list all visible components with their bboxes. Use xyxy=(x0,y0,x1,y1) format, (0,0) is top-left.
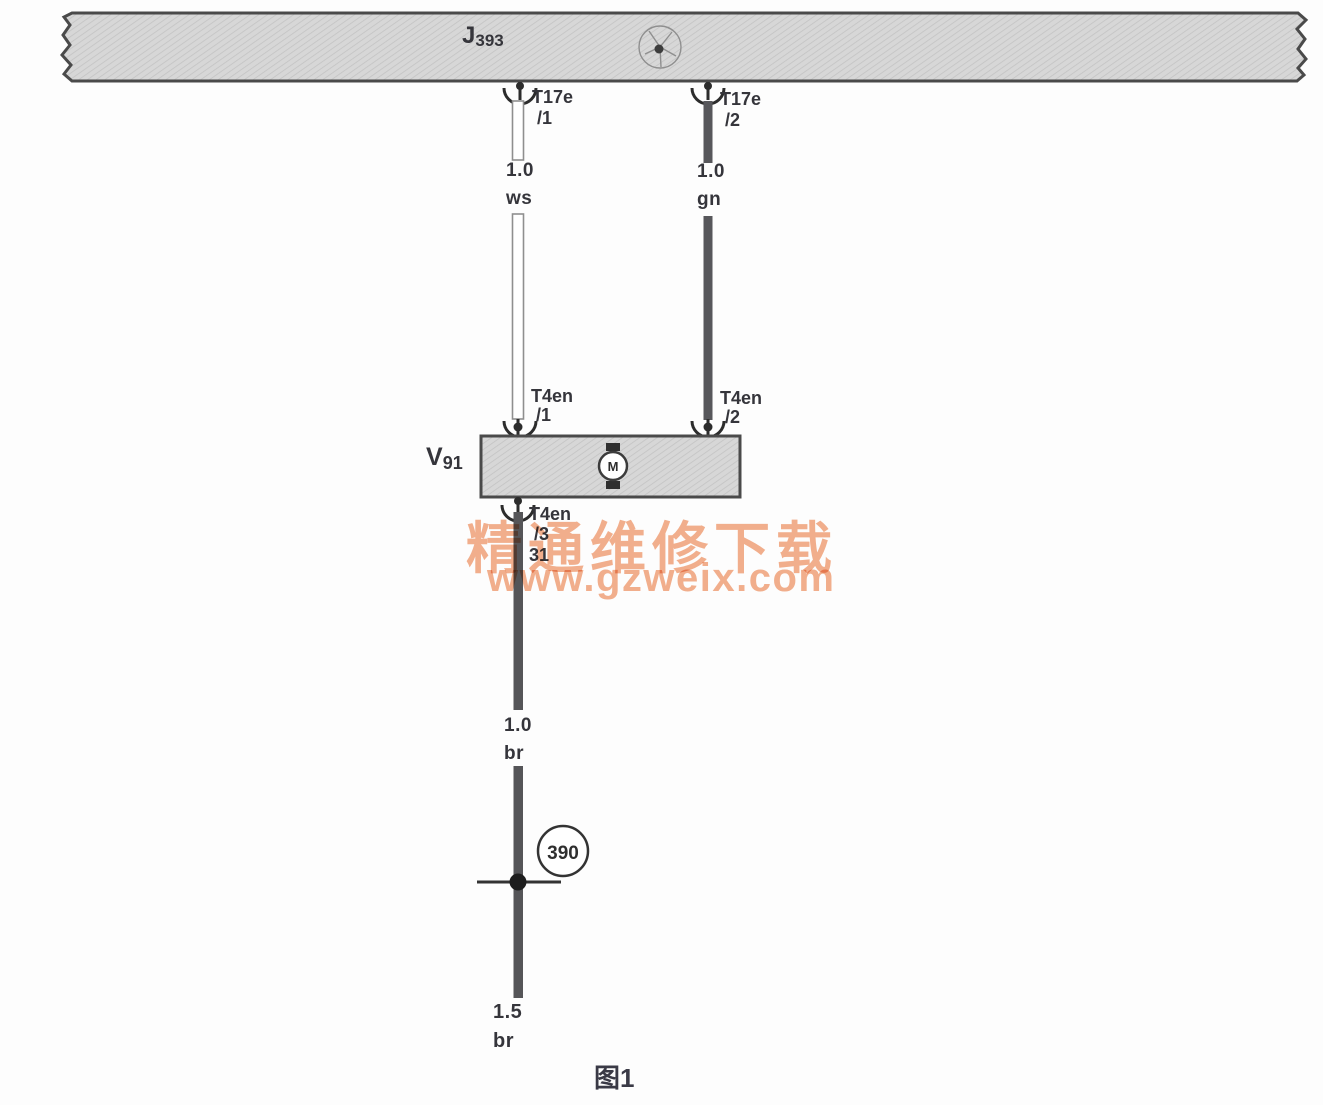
connector-t4en-1-symbol xyxy=(504,419,536,437)
scanned-wiring-diagram-page: J393 T17e /1 T17e /2 1.0 ws 1.0 gn T4en … xyxy=(0,0,1323,1105)
wire-br-upper-color: br xyxy=(504,744,524,763)
connector-t17e-1-name: T17e xyxy=(532,88,573,106)
figure-caption: 图1 xyxy=(594,1058,634,1095)
wire-gn-upper xyxy=(704,101,713,163)
connector-t4en-3-terminal: 31 xyxy=(529,546,549,564)
wire-br-upper xyxy=(514,512,524,710)
wire-gn-lower xyxy=(704,216,713,420)
connector-t4en-3-name: T4en xyxy=(529,505,571,523)
connector-t17e-2-name: T17e xyxy=(720,90,761,108)
wire-gn-size: 1.0 xyxy=(697,162,725,181)
wire-br-upper-size: 1.0 xyxy=(504,716,532,735)
bus-label-number: 393 xyxy=(475,31,503,50)
connector-t4en-2-pin: /2 xyxy=(725,408,740,426)
connector-t17e-2-pin: /2 xyxy=(725,111,740,129)
wire-br-lower-size: 1.5 xyxy=(493,1002,522,1022)
connector-t17e-1-pin: /1 xyxy=(537,109,552,127)
wire-br-lower-color: br xyxy=(493,1031,514,1051)
component-v91-label: V91 xyxy=(426,445,463,472)
bus-label: J393 xyxy=(462,24,504,49)
ground-point-number: 390 xyxy=(539,843,587,865)
wire-ws-upper xyxy=(513,101,524,160)
connector-t4en-2-symbol xyxy=(692,419,724,437)
wire-ws-lower xyxy=(513,214,524,419)
bus-label-prefix: J xyxy=(462,22,475,49)
wiring-diagram-graphics xyxy=(0,0,1323,1105)
connector-t4en-1-name: T4en xyxy=(531,387,573,405)
connector-t4en-3-pin: /3 xyxy=(534,525,549,543)
connector-t4en-2-name: T4en xyxy=(720,389,762,407)
bus-bar xyxy=(62,13,1306,81)
wire-gn-color: gn xyxy=(697,190,721,209)
component-v91-number: 91 xyxy=(443,453,463,473)
wire-ws-color: ws xyxy=(506,189,532,208)
ground-junction-dot xyxy=(510,874,527,891)
wire-ws-size: 1.0 xyxy=(506,161,534,180)
connector-t4en-1-pin: /1 xyxy=(536,406,551,424)
component-v91-prefix: V xyxy=(426,443,443,471)
motor-letter: M xyxy=(604,459,622,474)
